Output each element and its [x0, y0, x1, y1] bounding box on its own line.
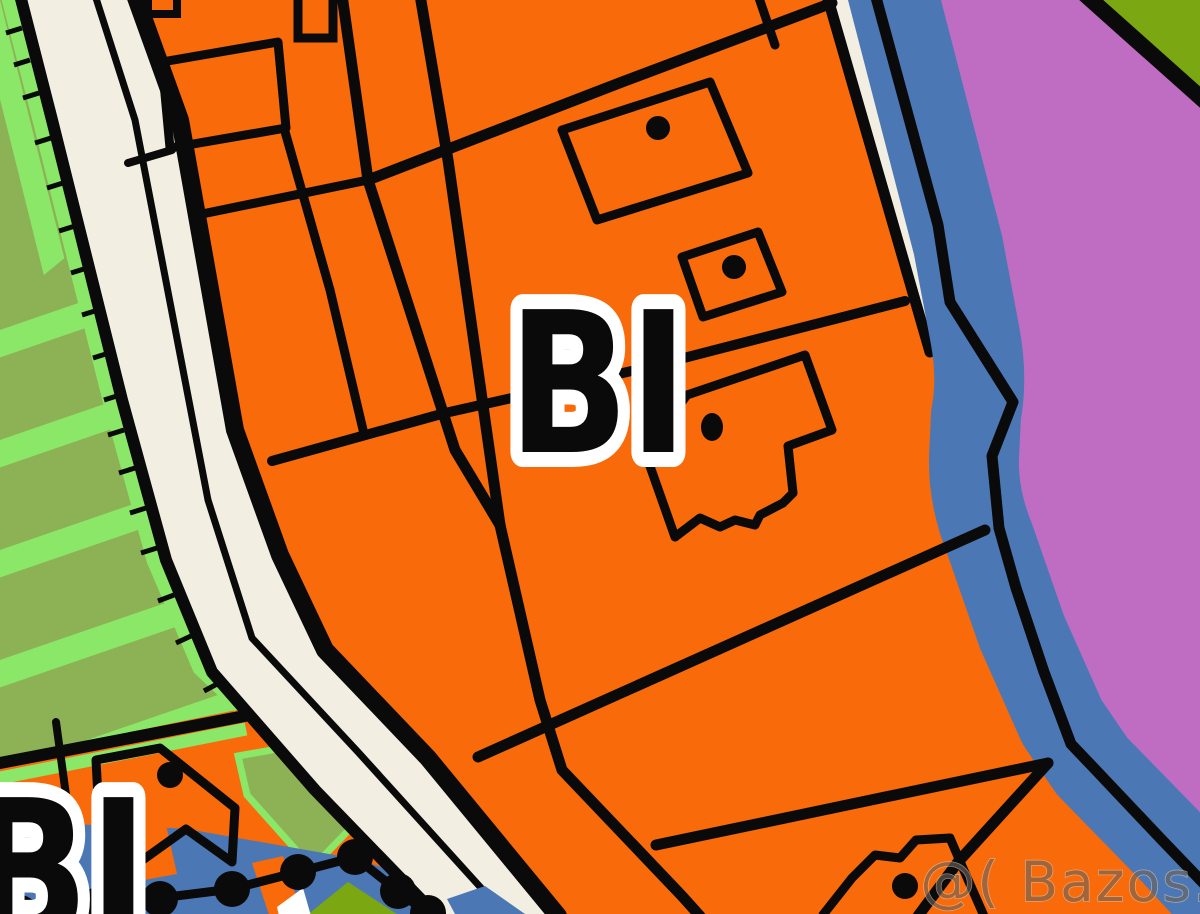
boundary-dot — [337, 839, 373, 875]
building-dot — [701, 413, 723, 441]
boundary-dot — [380, 873, 416, 909]
zoning-map-canvas: BI BI @( Bazos.cz — [0, 0, 1200, 914]
boundary-dot — [214, 871, 250, 907]
boundary-dot — [280, 854, 316, 890]
zone-label-bi-central: BI — [508, 271, 688, 499]
building-dot — [646, 116, 670, 140]
building-dot — [892, 873, 918, 899]
zoning-map[interactable]: BI BI @( Bazos.cz — [0, 0, 1200, 914]
building-dot — [157, 762, 183, 788]
watermark-text: @( Bazos.cz — [920, 850, 1200, 914]
zone-label-bi-bottom-left: BI — [0, 759, 148, 914]
building-dot — [722, 255, 746, 279]
